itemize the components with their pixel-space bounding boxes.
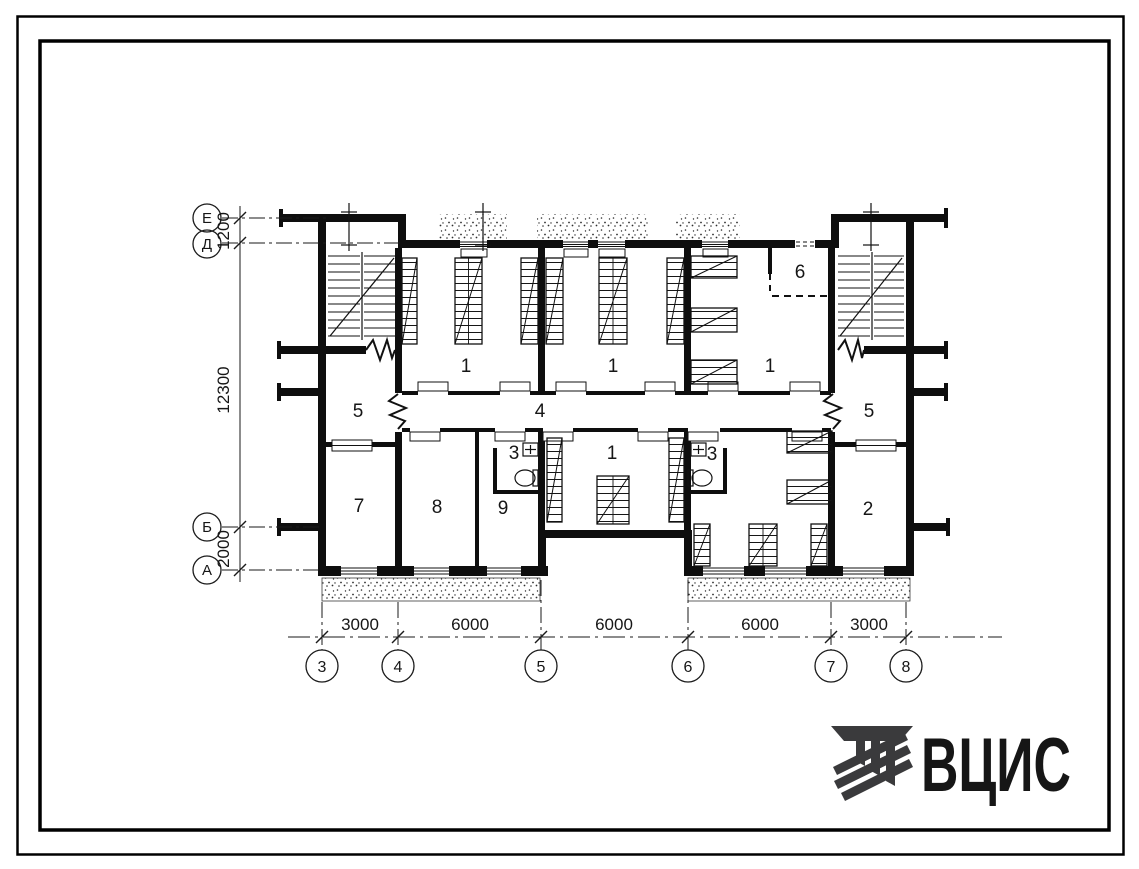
locker-block	[691, 308, 737, 332]
dim-3000-b: 3000	[850, 615, 888, 634]
dim-2000: 2000	[214, 530, 233, 568]
room-label-1-lower: 1	[607, 443, 618, 464]
dim-1200: 1200	[214, 212, 233, 250]
axis-label-8: 8	[902, 659, 911, 676]
door-sill-dashed-room6	[795, 239, 815, 248]
axis-label-7: 7	[827, 659, 836, 676]
axis-label-5: 5	[537, 659, 546, 676]
room-label-7: 7	[354, 496, 365, 517]
wall-div-8-9	[475, 432, 479, 566]
axis-label-B: Б	[202, 519, 212, 536]
dim-6000-a: 6000	[451, 615, 489, 634]
wall-axis4-lower	[395, 432, 402, 566]
room-label-1-right: 1	[765, 356, 776, 377]
wall-break-left	[322, 346, 366, 354]
room-label-3-right: 3	[707, 444, 718, 465]
axis-label-6: 6	[684, 659, 693, 676]
wall-cap-top-right	[944, 208, 948, 228]
locker-block	[597, 476, 629, 524]
axis-label-D: Д	[202, 236, 212, 253]
pavement-left	[322, 578, 540, 601]
room-label-5-right: 5	[864, 401, 875, 422]
room-label-2: 2	[863, 499, 874, 520]
wall-wc-left-v	[493, 448, 497, 494]
porch-right	[676, 214, 740, 240]
locker-block	[667, 258, 684, 344]
wall-wc-left-h	[493, 490, 543, 494]
wall-top-left	[318, 214, 406, 222]
locker-block	[402, 258, 417, 344]
locker-block	[455, 258, 482, 344]
wall-axis4-upper	[395, 248, 402, 393]
door-sill	[702, 240, 728, 248]
door-sill	[598, 240, 625, 248]
dim-6000-c: 6000	[741, 615, 779, 634]
locker-block	[749, 524, 777, 566]
locker-block	[669, 438, 684, 522]
locker-block	[811, 524, 827, 566]
axis-label-A: А	[202, 562, 212, 579]
axis-label-3: 3	[318, 659, 327, 676]
wall-axis5-upper	[538, 248, 545, 393]
dim-6000-b: 6000	[595, 615, 633, 634]
locker-block	[787, 480, 832, 504]
axis-label-E: Е	[202, 210, 212, 227]
window	[487, 566, 521, 576]
dim-3000-a: 3000	[341, 615, 379, 634]
room-label-5-left: 5	[353, 401, 364, 422]
window	[341, 566, 377, 576]
vcis-logo-text: ВЦИС	[921, 723, 1071, 808]
porch-left	[438, 214, 507, 240]
door-sill	[563, 240, 588, 248]
room-label-1-mid: 1	[608, 356, 619, 377]
locker-block	[694, 524, 710, 566]
window	[414, 566, 449, 576]
dim-12300: 12300	[214, 366, 233, 413]
window	[703, 566, 744, 576]
blueprint-canvas: 1 1 1 6 5 4 5 3 1 3 7 8 9 2	[0, 0, 1139, 869]
room-label-3-left: 3	[509, 443, 520, 464]
pavement-right	[688, 578, 910, 601]
room-label-1-left: 1	[461, 356, 472, 377]
window	[843, 566, 884, 576]
porch-middle	[537, 214, 648, 240]
wall-wc-right-h	[686, 490, 727, 494]
room-label-corridor-4: 4	[535, 401, 546, 422]
wall-wc-right-v	[723, 448, 727, 494]
wall-axis7-upper	[828, 248, 835, 393]
locker-block	[546, 258, 563, 344]
locker-block	[521, 258, 538, 344]
wall-room6-left	[768, 248, 772, 274]
wall-break-right	[864, 346, 906, 354]
locker-block	[691, 256, 737, 278]
locker-block	[599, 258, 627, 344]
locker-block	[787, 431, 832, 453]
wall-right-exterior	[906, 214, 914, 576]
room-label-8: 8	[432, 497, 443, 518]
locker-block	[547, 438, 562, 522]
wall-bottom-middle	[538, 530, 692, 538]
room-label-9: 9	[498, 498, 509, 519]
room-label-6: 6	[795, 262, 806, 283]
wall-top-right	[831, 214, 946, 222]
wall-axis5-lower	[538, 432, 545, 530]
window	[765, 566, 806, 576]
axis-label-4: 4	[394, 659, 403, 676]
locker-block	[691, 360, 737, 384]
wall-axis6-upper	[684, 248, 691, 393]
